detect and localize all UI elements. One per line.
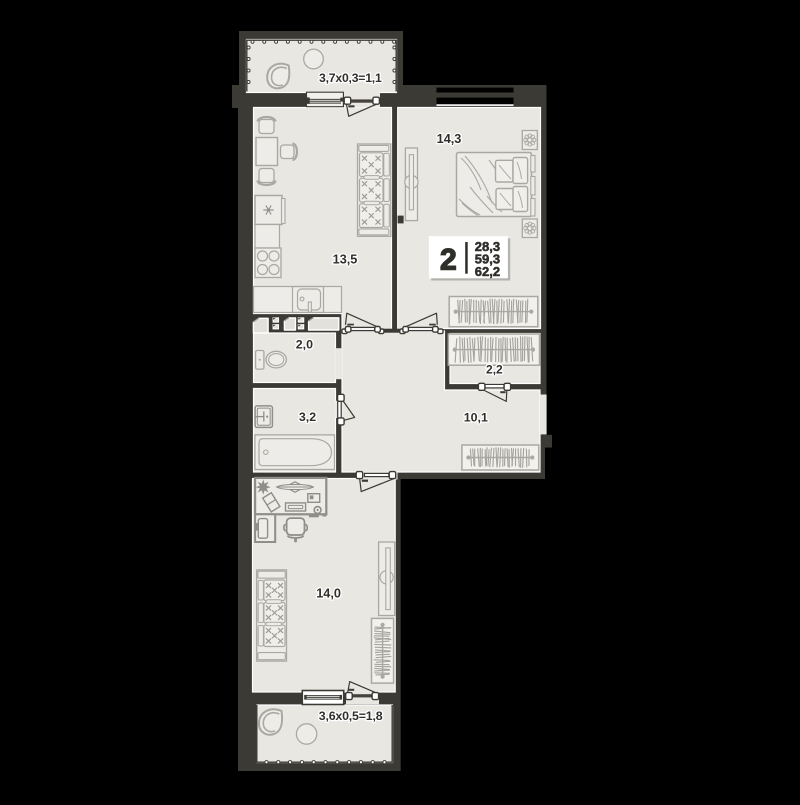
svg-text:2,0: 2,0 — [296, 337, 313, 351]
svg-text:3,2: 3,2 — [299, 410, 316, 424]
svg-text:3,7х0,3=1,1: 3,7х0,3=1,1 — [319, 71, 382, 85]
svg-text:2: 2 — [440, 244, 457, 277]
svg-text:14,3: 14,3 — [437, 132, 462, 146]
svg-text:13,5: 13,5 — [333, 253, 358, 267]
svg-text:2,2: 2,2 — [486, 362, 503, 376]
svg-text:3,6х0,5=1,8: 3,6х0,5=1,8 — [319, 709, 383, 723]
svg-text:62,2: 62,2 — [475, 264, 500, 279]
svg-text:14,0: 14,0 — [316, 586, 341, 600]
svg-text:10,1: 10,1 — [464, 410, 488, 424]
